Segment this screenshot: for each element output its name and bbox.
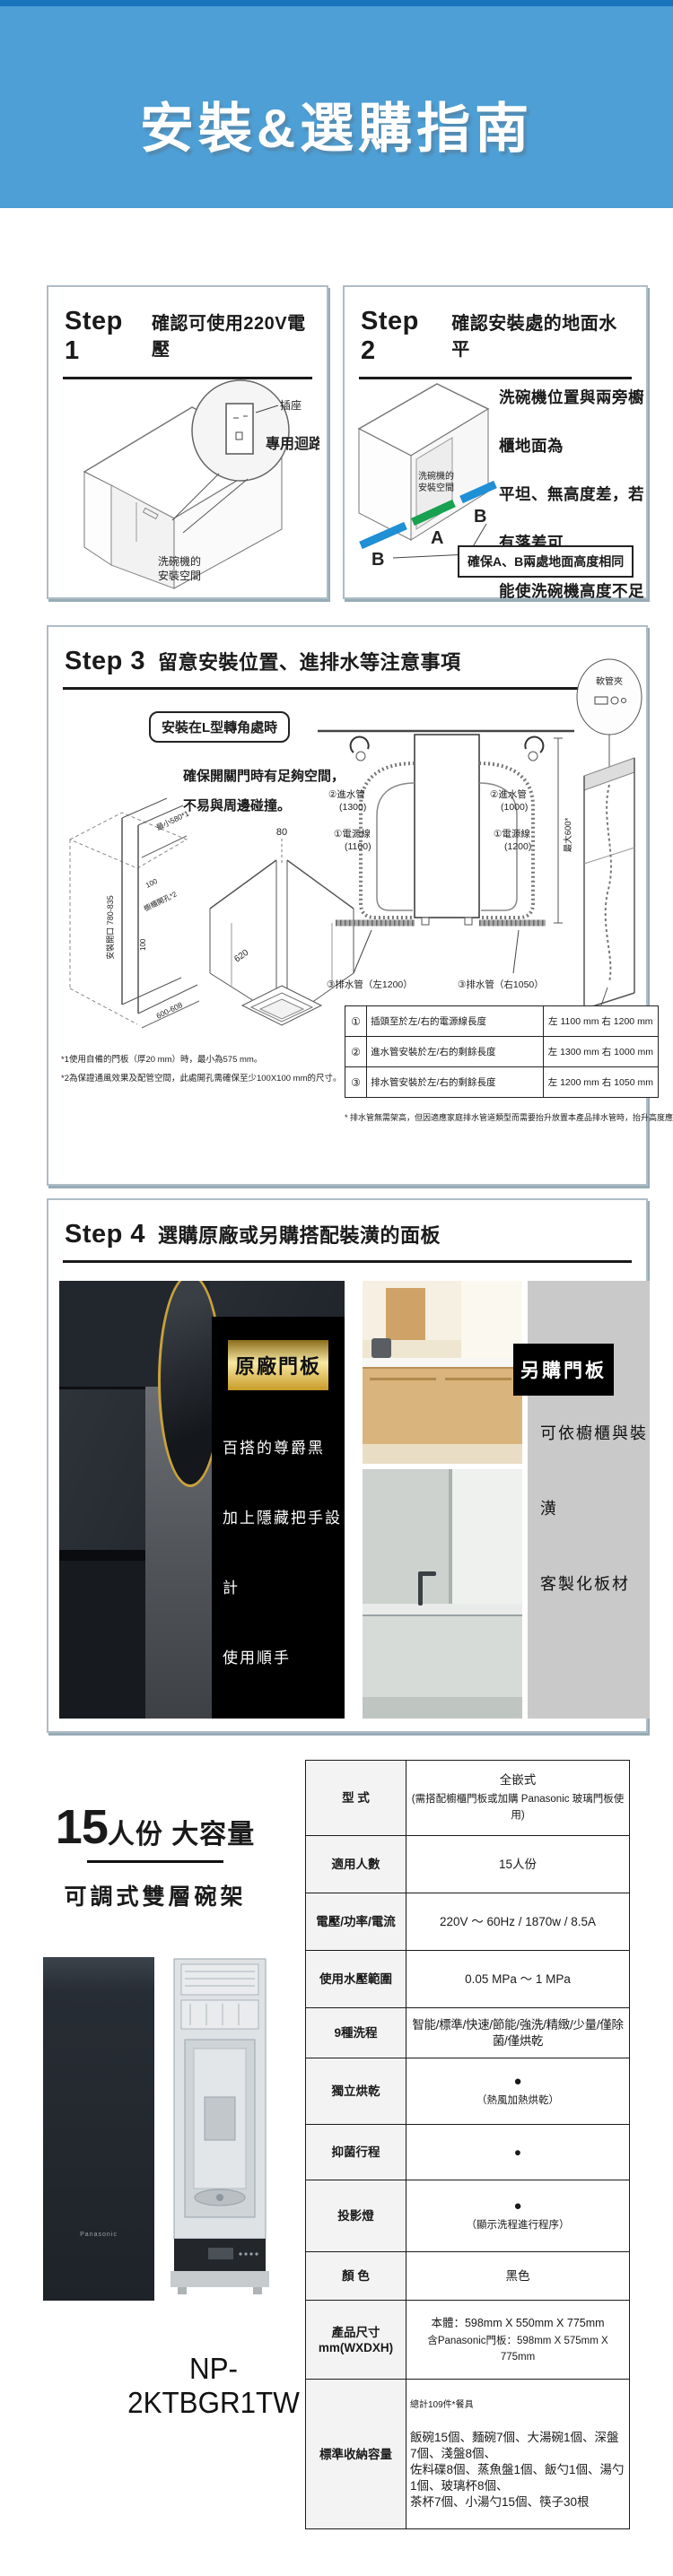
inlet-left-label: ②進水管: [328, 788, 365, 800]
spec-value-note: （顯示洗程進行程序）: [410, 2217, 625, 2233]
inlet-left-length: (1300): [339, 802, 366, 813]
label-a: A: [431, 528, 443, 548]
rack-subtitle: 可調式雙層碗架: [38, 1879, 273, 1911]
countertop: [363, 1604, 522, 1614]
power-left-label: ①電源線: [334, 828, 371, 840]
step1-title: 確認可使用220V電壓: [152, 309, 310, 361]
spec-value: 220V ～ 60Hz / 1870w / 8.5A: [406, 1893, 630, 1951]
power-left-length: (1100): [345, 841, 371, 852]
foot: [422, 918, 429, 925]
outlet-cabinet-diagram: 插座 專用迴路 洗碗機的 安裝空間: [57, 366, 319, 592]
leader-line: [354, 930, 371, 973]
footnotes: *1使用自備的門板（厚20 mm）時，最小為575 mm。 *2為保證通風效果及…: [61, 1050, 342, 1088]
left-slab: [84, 472, 111, 565]
spec-row-persons: 適用人數 15人份: [306, 1836, 630, 1893]
spec-row-dimensions: 產品尺寸 mm(WXDXH) 本體：598mm X 550mm X 775mm …: [306, 2301, 630, 2380]
original-panel-photo: 原廠門板 百搭的尊爵黑 加上隱藏把手設計 使用順手 完美融入櫥櫃: [59, 1281, 345, 1719]
spec-row-color: 顏 色 黑色: [306, 2252, 630, 2301]
model-number: NP-2KTBGR1TW: [111, 2352, 316, 2420]
spec-value: 總計109件*餐具: [410, 2398, 625, 2414]
floor: [363, 1444, 522, 1464]
step2-label: Step 2: [361, 307, 439, 366]
spec-value-note: 含Panasonic門板：598mm X 575mm X 775mm: [410, 2333, 625, 2365]
outlet-label: 插座: [280, 398, 302, 412]
base-kick: [170, 2271, 269, 2287]
spec-row-projector: 投影燈 ● （顯示洗程進行程序）: [306, 2180, 630, 2252]
spec-row-programs: 9種洗程 智能/標準/快速/節能/強洗/精緻/少量/僅除菌/僅烘乾: [306, 2008, 630, 2058]
detergent-module: [205, 2097, 235, 2140]
footnote-2: *2為保證通風效果及配管空間，此處開孔需確保至少100X100 mm的尺寸。: [61, 1069, 342, 1088]
inlet-right-length: (1000): [501, 802, 528, 813]
display: [208, 2248, 233, 2259]
spec-value-cell: ● （熱風加熱烘乾）: [406, 2058, 630, 2125]
spec-row-type: 型 式 全嵌式 (需搭配櫥櫃門板或加購 Panasonic 玻璃門板使用): [306, 1761, 630, 1836]
black-door-panel-image: Panasonic: [43, 1957, 154, 2301]
spec-value-note: (需搭配櫥櫃門板或加購 Panasonic 玻璃門板使用): [410, 1791, 625, 1823]
spec-value-cell: 總計109件*餐具 飯碗15個、麵碗7個、大湯碗1個、深盤7個、淺盤8個、 佐料…: [406, 2380, 630, 2529]
foot: [253, 2287, 262, 2294]
feature-dot: ●: [410, 2198, 625, 2215]
dim-100-top: 100: [144, 877, 159, 890]
step2-header: Step 2 確認安裝處的地面水平: [345, 287, 646, 366]
opening-dimensions-diagram: 安裝開口 780-835 最小580*1 100 櫥櫃開孔*2 100 600-…: [52, 793, 209, 1049]
hose-path: [606, 785, 611, 982]
step4-header: Step 4 選購原廠或另購搭配裝潢的面板: [48, 1200, 646, 1249]
spec-label: 產品尺寸 mm(WXDXH): [306, 2301, 406, 2380]
hose-length-table: ① 插頭至於左/右的電源線長度 左 1100 mm 右 1200 mm ② 進水…: [345, 1005, 659, 1098]
spec-value-cell: ● （顯示洗程進行程序）: [406, 2180, 630, 2252]
row-value: 左 1300 mm 右 1000 mm: [543, 1037, 658, 1067]
step1-label: Step 1: [65, 307, 139, 366]
inlet-hose-right: [479, 763, 533, 918]
power-right-length: (1200): [504, 841, 531, 852]
outlet-plate-icon: [226, 404, 253, 454]
spec-label: 標準收納容量: [306, 2380, 406, 2529]
divider: [63, 1260, 632, 1263]
spec-value: 全嵌式: [410, 1772, 625, 1788]
spec-label: 獨立烘乾: [306, 2058, 406, 2125]
space-label-2: 安裝空間: [158, 569, 201, 582]
dim-min: 最小580*1: [154, 808, 190, 831]
step4-title: 選購原廠或另購搭配裝潢的面板: [158, 1220, 441, 1249]
dishwasher-body: [415, 735, 479, 918]
spec-label: 投影燈: [306, 2180, 406, 2252]
spec-value-note: （熱風加熱烘乾）: [410, 2093, 625, 2109]
power-cord-left: [377, 783, 415, 910]
button: [239, 2252, 241, 2255]
foot: [465, 918, 472, 925]
spec-row-antibacterial: 抑菌行程 ●: [306, 2125, 630, 2180]
drain-right-label: ③排水管（右1050）: [458, 979, 544, 990]
power-right-label: ①電源線: [494, 828, 530, 840]
row-label: 進水管安裝於左/右的剩餘長度: [367, 1037, 544, 1067]
countertop: [363, 1358, 522, 1367]
swivel-arrow-left: [351, 737, 369, 753]
spec-value: 智能/標準/快速/節能/強洗/精緻/少量/僅除菌/僅烘乾: [406, 2008, 630, 2058]
button: [249, 2252, 252, 2255]
faucet-spout: [418, 1571, 436, 1576]
step1-panel: Step 1 確認可使用220V電壓 插座 專用迴路 洗碗機的 安裝空間: [47, 285, 328, 599]
step2-panel: Step 2 確認安裝處的地面水平 洗碗機位置與兩旁櫥櫃地面為 平坦、無高度差，…: [343, 285, 648, 599]
cabinet-handle: [370, 1378, 436, 1380]
feature-dot: ●: [406, 2125, 630, 2180]
level-callout: 確保A、B兩處地面高度相同: [458, 545, 634, 578]
callout-circle: [577, 659, 642, 735]
dim-hole: 櫥櫃開孔*2: [142, 889, 178, 913]
row-number: ③: [345, 1067, 367, 1098]
step3-title: 留意安裝位置、進排水等注意事項: [158, 647, 461, 675]
spec-label: 型 式: [306, 1761, 406, 1836]
spec-row-drying: 獨立烘乾 ● （熱風加熱烘乾）: [306, 2058, 630, 2125]
floor-strip-b-left: [361, 526, 406, 545]
base-edge: [122, 978, 181, 1005]
inlet-right-label: ②進水管: [490, 788, 527, 800]
step4-label: Step 4: [65, 1220, 145, 1249]
spec-value-cell: 全嵌式 (需搭配櫥櫃門板或加購 Panasonic 玻璃門板使用): [406, 1761, 630, 1836]
spec-label: 電壓/功率/電流: [306, 1893, 406, 1951]
clip-label: 軟管夾: [596, 675, 623, 687]
faucet-clip-right: [529, 752, 538, 761]
lower-cabinets: [363, 1614, 522, 1699]
row-label: 插頭至於左/右的電源線長度: [367, 1006, 544, 1037]
brand-logo: Panasonic: [43, 2232, 154, 2238]
step1-header: Step 1 確認可使用220V電壓: [48, 287, 327, 366]
wood-shelf: [386, 1288, 425, 1340]
underline: [87, 1860, 223, 1863]
step3-panel: Step 3 留意安裝位置、進排水等注意事項 安裝在L型轉角處時 確保開關門時有…: [47, 625, 648, 1186]
spec-label: 9種洗程: [306, 2008, 406, 2058]
row-value: 左 1200 mm 右 1050 mm: [543, 1067, 658, 1098]
row-label: 排水管安裝於左/右的剩餘長度: [367, 1067, 544, 1098]
upper-basket: [181, 2000, 258, 2029]
optional-door-badge: 另購門板: [513, 1344, 614, 1396]
original-feature-lines: 百搭的尊爵黑 加上隱藏把手設計 使用順手 完美融入櫥櫃: [212, 1390, 345, 1719]
page-title: 安裝&選購指南: [0, 6, 673, 163]
step3-header: Step 3 留意安裝位置、進排水等注意事項: [48, 627, 646, 676]
divider: [63, 687, 632, 690]
faucet: [418, 1573, 423, 1606]
kettle: [371, 1338, 391, 1358]
step2-title: 確認安裝處的地面水平: [451, 309, 630, 361]
page: 安裝&選購指南 Step 1 確認可使用220V電壓 插座 專用迴路 洗碗機的: [0, 0, 673, 2576]
spec-value-cell: 本體：598mm X 550mm X 775mm 含Panasonic門板：59…: [406, 2301, 630, 2380]
inlet-hose-left: [361, 763, 415, 918]
header-banner: 安裝&選購指南: [0, 0, 673, 208]
spec-value: 15人份: [406, 1836, 630, 1893]
spec-label: 顏 色: [306, 2252, 406, 2301]
optional-feature-lines: 可依櫥櫃與裝潢 客製化板材: [528, 1281, 650, 1622]
footnote-1: *1使用自備的門板（厚20 mm）時，最小為575 mm。: [61, 1050, 342, 1069]
spec-value: 本體：598mm X 550mm X 775mm: [410, 2315, 625, 2331]
step3-label: Step 3: [65, 647, 145, 676]
cabinet-handle: [445, 1378, 511, 1380]
spec-label: 抑菌行程: [306, 2125, 406, 2180]
spec-row-capacity: 標準收納容量 總計109件*餐具 飯碗15個、麵碗7個、大湯碗1個、深盤7個、淺…: [306, 2380, 630, 2529]
capacity-row: 15 人份 大容量: [38, 1799, 273, 1855]
spec-label: 適用人數: [306, 1836, 406, 1893]
panel-photos-area: 原廠門板 百搭的尊爵黑 加上隱藏把手設計 使用順手 完美融入櫥櫃: [59, 1281, 639, 1719]
hose-clip-diagram: 軟管夾: [573, 657, 645, 1034]
capacity-text: 人份 大容量: [108, 1812, 255, 1851]
top-rack: [181, 1964, 258, 1995]
circuit-label: 專用迴路: [266, 435, 319, 452]
spec-value: 0.05 MPa ～ 1 MPa: [406, 1951, 630, 2008]
space-label-1: 洗碗機的: [418, 470, 454, 482]
row-number: ②: [345, 1037, 367, 1067]
faucet-clip-left: [356, 752, 365, 761]
dim-620: 620: [232, 947, 250, 964]
spray-arm-hub: [216, 2194, 223, 2201]
corner-install-tag: 安裝在L型轉角處時: [149, 711, 290, 743]
max-height-label: 最大600*: [563, 817, 573, 852]
space-label-1: 洗碗機的: [158, 554, 201, 568]
dim-80: 80: [276, 827, 287, 838]
capacity-headline: 15 人份 大容量 可調式雙層碗架: [38, 1799, 273, 1911]
button: [255, 2252, 258, 2255]
table-row: ① 插頭至於左/右的電源線長度 左 1100 mm 右 1200 mm: [345, 1006, 659, 1037]
feature-dot: ●: [410, 2074, 625, 2090]
label-b-left: B: [371, 550, 384, 569]
gray-kitchen-photo: [363, 1469, 522, 1719]
row-number: ①: [345, 1006, 367, 1037]
wood-kitchen-photo: [363, 1281, 522, 1464]
open-dishwasher-image: [167, 1954, 273, 2309]
swivel-arrow-right: [525, 737, 543, 753]
button: [244, 2252, 247, 2255]
spec-row-pressure: 使用水壓範圍 0.05 MPa ～ 1 MPa: [306, 1951, 630, 2008]
foot: [178, 2287, 187, 2294]
step4-panel: Step 4 選購原廠或另購搭配裝潢的面板 原廠門板 百搭的尊爵黑 加上隱藏把手…: [47, 1198, 648, 1733]
floor: [363, 1697, 522, 1719]
spec-value-list: 飯碗15個、麵碗7個、大湯碗1個、深盤7個、淺盤8個、 佐料碟8個、蒸魚盤1個、…: [410, 2430, 625, 2511]
row-value: 左 1100 mm 右 1200 mm: [543, 1006, 658, 1037]
cabinet-edge: [70, 988, 137, 1024]
left-wall-top: [210, 860, 276, 909]
space-label-2: 安裝空間: [418, 482, 454, 493]
shelf-line: [584, 848, 634, 864]
spec-value: 黑色: [406, 2252, 630, 2301]
capacity-number: 15: [56, 1799, 108, 1855]
hose-routing-diagram: ②進水管 (1300) ①電源線 (1100) ②進水管 (1000) ①電源線…: [314, 713, 579, 1018]
table-row: ② 進水管安裝於左/右的剩餘長度 左 1300 mm 右 1000 mm: [345, 1037, 659, 1067]
original-door-badge: 原廠門板: [228, 1340, 328, 1390]
spec-table: 型 式 全嵌式 (需搭配櫥櫃門板或加購 Panasonic 玻璃門板使用) 適用…: [305, 1760, 630, 2529]
dim-opening: 安裝開口 780-835: [105, 895, 115, 960]
leader-line: [513, 930, 519, 973]
floor-level-diagram: B A B 洗碗機的 安裝空間: [352, 370, 499, 569]
dim-100-bottom: 100: [139, 938, 147, 951]
drain-left-label: ③排水管（左1200）: [327, 979, 413, 990]
spec-row-power: 電壓/功率/電流 220V ～ 60Hz / 1870w / 8.5A: [306, 1893, 630, 1951]
spec-label: 使用水壓範圍: [306, 1951, 406, 2008]
label-b-right: B: [474, 507, 486, 527]
step2-description: 洗碗機位置與兩旁櫥櫃地面為 平坦、無高度差，若有落差可 能使洗碗機高度不足無法安…: [499, 373, 646, 664]
original-text-panel: 原廠門板 百搭的尊爵黑 加上隱藏把手設計 使用順手 完美融入櫥櫃: [212, 1317, 345, 1719]
table-row: ③ 排水管安裝於左/右的剩餘長度 左 1200 mm 右 1050 mm: [345, 1067, 659, 1098]
drain-footnote: * 排水管無需架高，但因適應家庭排水管道類型而需要抬升放置本產品排水管時，抬升高…: [345, 1111, 673, 1123]
